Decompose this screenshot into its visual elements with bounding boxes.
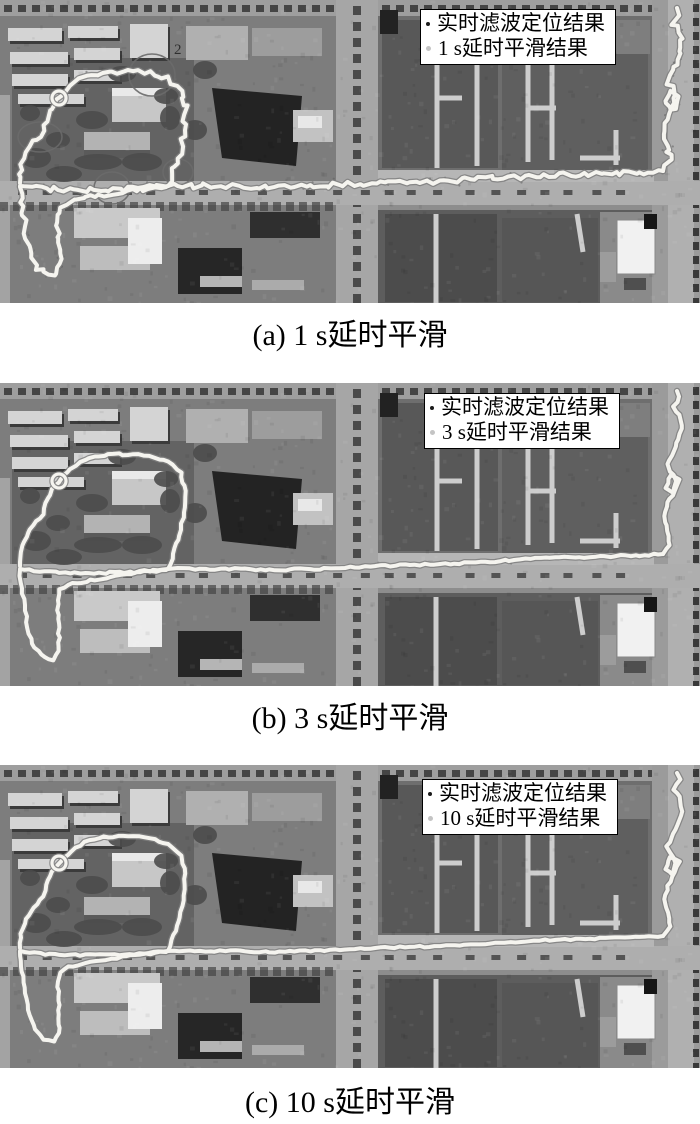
legend-box-b: 实时滤波定位结果 3 s延时平滑结果 bbox=[424, 393, 620, 449]
svg-text:2: 2 bbox=[174, 42, 182, 58]
panel-caption-a: (a) 1 s延时平滑 bbox=[0, 303, 700, 383]
legend-item-smooth: 3 s延时平滑结果 bbox=[430, 420, 609, 445]
legend-box-a: 实时滤波定位结果 1 s延时平滑结果 bbox=[420, 9, 616, 65]
smooth-dot-icon bbox=[426, 46, 431, 51]
smooth-dot-icon bbox=[430, 430, 435, 435]
satellite-map-a: 2 实时滤波定位结果 1 s延时平滑结果 bbox=[0, 0, 700, 303]
legend-label-smooth: 1 s延时平滑结果 bbox=[438, 36, 588, 61]
legend-label-smooth: 3 s延时平滑结果 bbox=[442, 420, 592, 445]
legend-item-filter: 实时滤波定位结果 bbox=[426, 11, 605, 36]
panel-b: 实时滤波定位结果 3 s延时平滑结果 (b) 3 s延时平滑 bbox=[0, 383, 700, 765]
filter-dot-icon bbox=[428, 792, 432, 796]
smooth-dot-icon bbox=[428, 816, 433, 821]
legend-box-c: 实时滤波定位结果 10 s延时平滑结果 bbox=[422, 779, 618, 835]
legend-label-smooth: 10 s延时平滑结果 bbox=[440, 806, 600, 831]
filter-dot-icon bbox=[430, 406, 434, 410]
legend-item-smooth: 1 s延时平滑结果 bbox=[426, 36, 605, 61]
legend-item-filter: 实时滤波定位结果 bbox=[428, 781, 607, 806]
figure-satellite-trajectories: 2 实时滤波定位结果 1 s延时平滑结果 (a) 1 s延时平滑 实时滤波定位结… bbox=[0, 0, 700, 1124]
filter-dot-icon bbox=[426, 22, 430, 26]
legend-item-smooth: 10 s延时平滑结果 bbox=[428, 806, 607, 831]
satellite-map-c: 实时滤波定位结果 10 s延时平滑结果 bbox=[0, 765, 700, 1068]
legend-label-filter: 实时滤波定位结果 bbox=[437, 11, 605, 36]
panel-caption-c: (c) 10 s延时平滑 bbox=[0, 1068, 700, 1124]
panel-caption-b: (b) 3 s延时平滑 bbox=[0, 686, 700, 765]
satellite-map-b: 实时滤波定位结果 3 s延时平滑结果 bbox=[0, 383, 700, 686]
legend-label-filter: 实时滤波定位结果 bbox=[441, 395, 609, 420]
panel-c: 实时滤波定位结果 10 s延时平滑结果 (c) 10 s延时平滑 bbox=[0, 765, 700, 1124]
legend-item-filter: 实时滤波定位结果 bbox=[430, 395, 609, 420]
legend-label-filter: 实时滤波定位结果 bbox=[439, 781, 607, 806]
panel-a: 2 实时滤波定位结果 1 s延时平滑结果 (a) 1 s延时平滑 bbox=[0, 0, 700, 383]
